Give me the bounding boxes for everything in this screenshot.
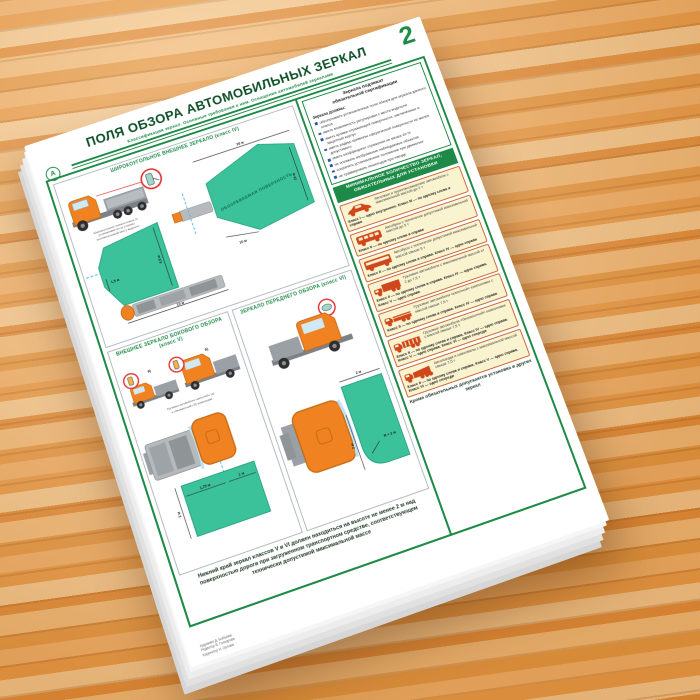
label-b: б) [204, 346, 209, 351]
truck-b-side-view: б) [167, 338, 242, 395]
safety-poster-sheet: 2 А ПОЛЯ ОБЗОРА АВТОМОБИЛЬНЫХ ЗЕРКАЛ Кла… [24, 16, 609, 667]
dim-10m-right: 10 м [239, 238, 248, 244]
truck-front-side-view [258, 295, 355, 372]
field-right-polygon: 25 м 15 м ОБОЗРЕВАЕМАЯ ПОВЕРХНОСТЬ 10 м [191, 126, 320, 251]
page-number: 2 [396, 22, 418, 50]
side-top-view: 2 м 1,75 м 1 м [138, 406, 270, 545]
credits-block: Художник Д. Бобылев Редактор В. Гончаров… [199, 632, 237, 658]
dim-2m-side: 2 м [176, 511, 182, 518]
front-top-view: 2 м R = 2 м 2 м [268, 363, 410, 492]
wood-table-background: 2 А ПОЛЯ ОБЗОРА АВТОМОБИЛЬНЫХ ЗЕРКАЛ Кла… [0, 0, 700, 700]
dim-25m: 25 м [236, 140, 245, 146]
label-a: а) [147, 368, 152, 373]
